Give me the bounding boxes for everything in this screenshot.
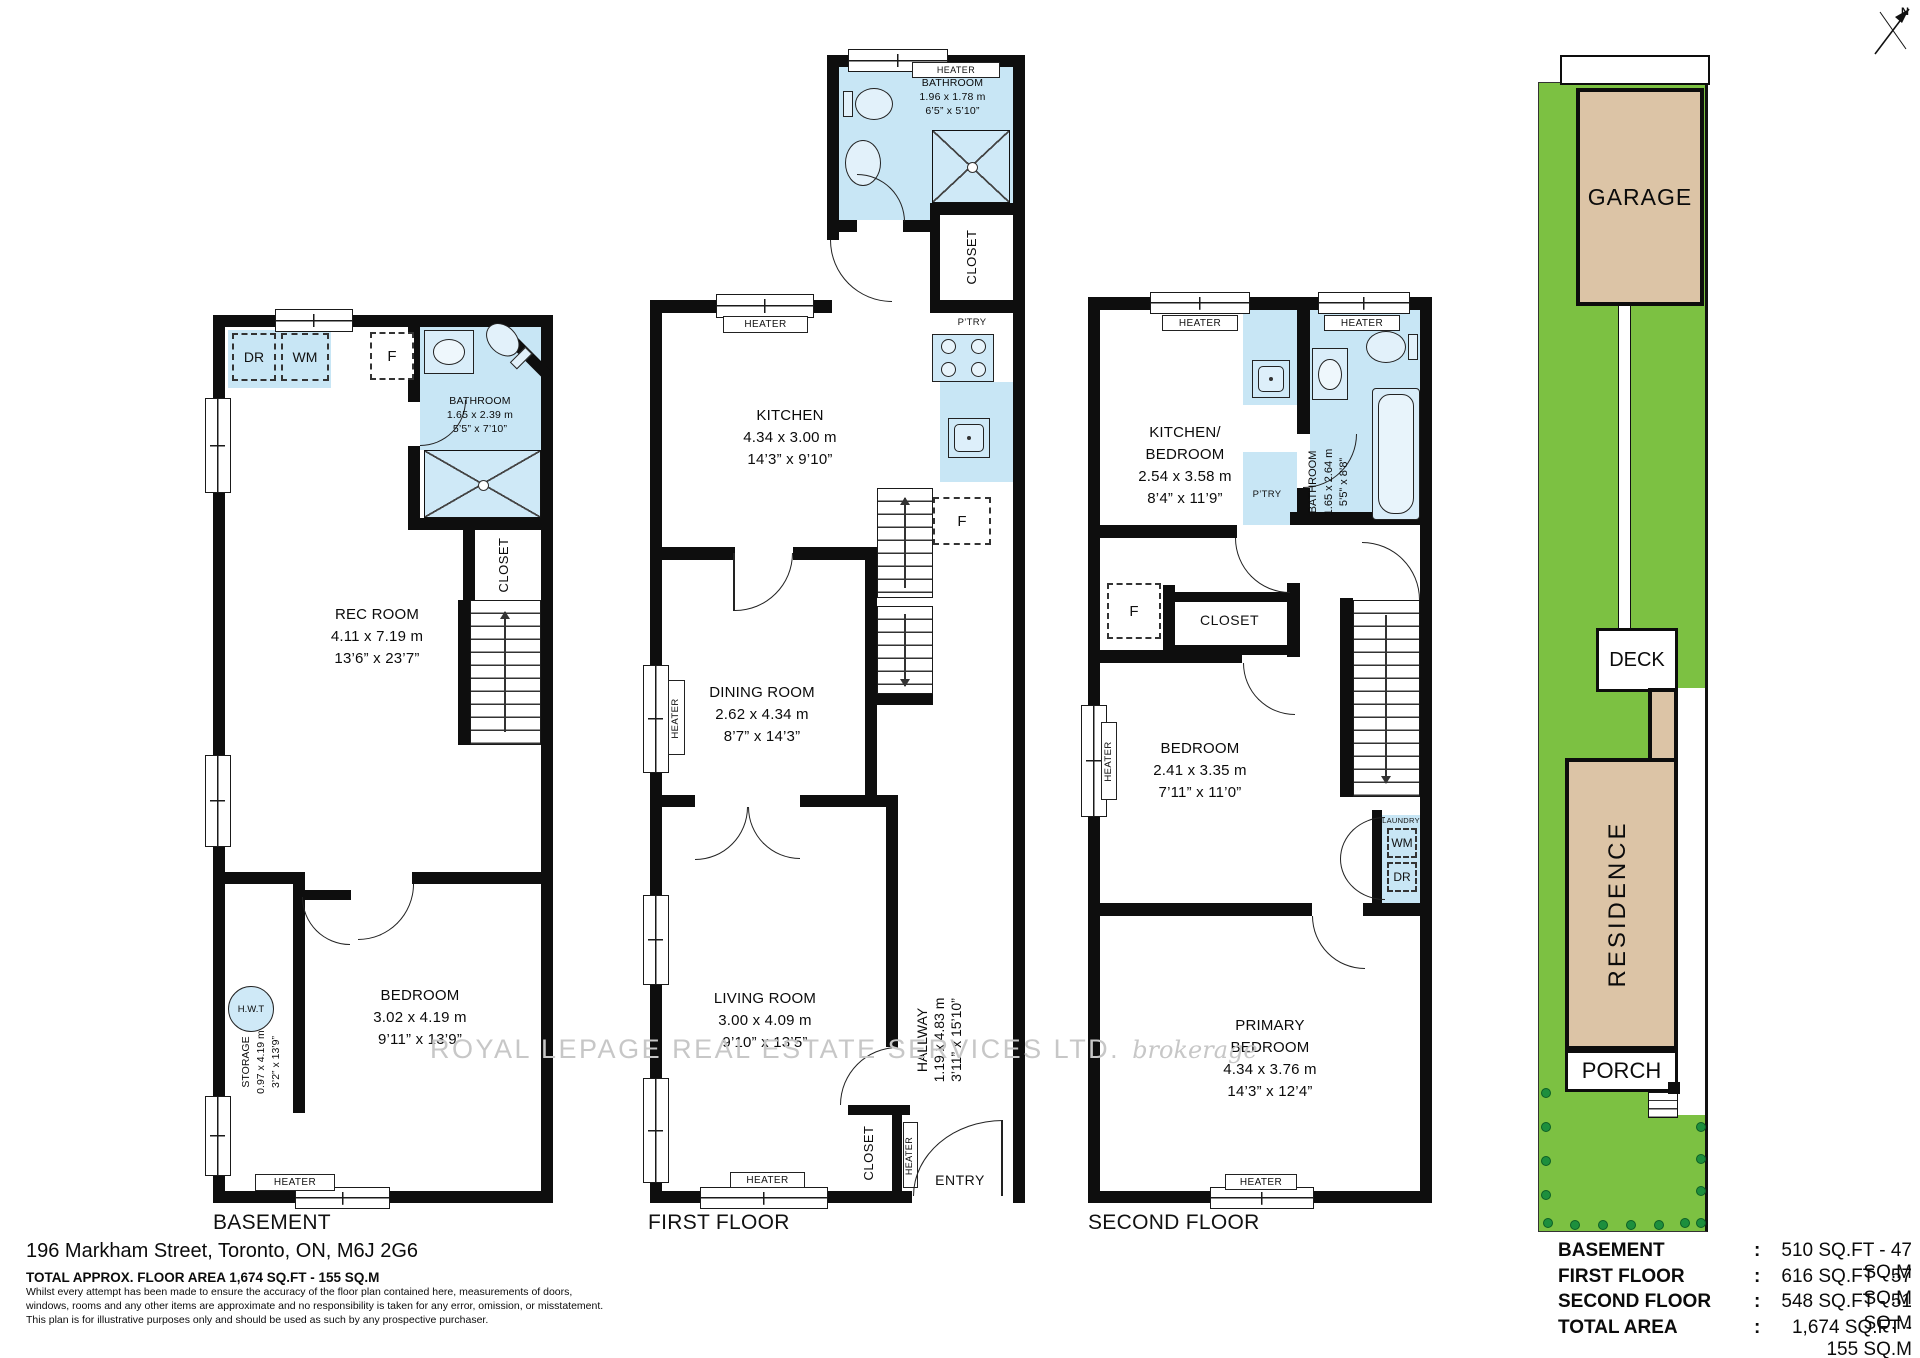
heater-label: HEATER (255, 1174, 335, 1191)
wall (1100, 903, 1312, 916)
room-name: BEDROOM (1160, 1037, 1380, 1059)
area-row-colon: : (1754, 1240, 1770, 1262)
room-dim-ft: 9’10” x 13’5” (665, 1032, 865, 1054)
shrub (1543, 1218, 1553, 1228)
shrub (1696, 1218, 1706, 1228)
heater-label: HEATER (1324, 315, 1400, 331)
shrub (1626, 1220, 1636, 1230)
wall (1420, 297, 1432, 1203)
porch-steps (1648, 1092, 1678, 1118)
address: 196 Markham Street, Toronto, ON, M6J 2G6 (26, 1240, 666, 1263)
dryer-box: DR (1387, 862, 1417, 892)
sink-basin (1318, 359, 1341, 390)
room-dim-m: 1.96 x 1.78 m (895, 90, 1010, 104)
room-name: BEDROOM (325, 985, 515, 1007)
first-living-label: LIVING ROOM 3.00 x 4.09 m 9’10” x 13’5” (665, 988, 865, 1054)
room-dim-ft: 5’5” x 8’8” (1337, 407, 1353, 557)
walkway (1618, 306, 1631, 628)
room-dim-m: 3.02 x 4.19 m (325, 1007, 515, 1029)
floorplan-canvas: HEATER DR WM F CLOSET BATHROOM 1.65 x 2.… (0, 0, 1920, 1358)
north-label: N (1901, 6, 1909, 18)
north-compass-icon: N (1868, 2, 1916, 60)
second-primary-bedroom-label: PRIMARY BEDROOM 4.34 x 3.76 m 14’3” x 12… (1160, 1015, 1380, 1103)
burner (971, 339, 986, 354)
wall (650, 795, 695, 807)
disclaimer-line: windows, rooms and any other items are a… (26, 1300, 666, 1313)
room-name: BEDROOM (1085, 444, 1285, 466)
stairs-arrow (1385, 615, 1387, 783)
room-dim-m: 2.41 x 3.35 m (1105, 760, 1295, 782)
door-arc (840, 1047, 898, 1105)
wall (1100, 525, 1237, 538)
table-row: TOTAL AREA : 1,674 SQ.FT - 155 SQ.M (1558, 1317, 1912, 1343)
wall (463, 530, 475, 600)
garage: GARAGE (1576, 88, 1704, 306)
residence-wing (1648, 688, 1678, 762)
shower (424, 450, 541, 518)
wall (930, 203, 1013, 215)
door-arc (830, 240, 892, 302)
room-dim-ft: 3’11” x 15’10” (948, 955, 965, 1125)
wall (1013, 55, 1025, 1203)
door-arc (358, 884, 414, 940)
first-dining-label: DINING ROOM 2.62 x 4.34 m 8’7” x 14’3” (662, 682, 862, 748)
door-leaf (733, 553, 735, 611)
room-dim-m: 1.65 x 2.39 m (420, 408, 540, 422)
wall (293, 880, 305, 1113)
toilet-bowl (1366, 331, 1406, 363)
area-table: BASEMENT : 510 SQ.FT - 47 SQ.M FIRST FLO… (1558, 1240, 1912, 1342)
shrub (1541, 1088, 1551, 1098)
door-arc (1312, 916, 1365, 969)
stairs-arrow (504, 612, 506, 732)
window (1210, 1187, 1314, 1209)
room-name: KITCHEN/ (1085, 422, 1285, 444)
room-dim-ft: 14’3” x 12’4” (1160, 1081, 1380, 1103)
shrub (1696, 1186, 1706, 1196)
porch: PORCH (1565, 1050, 1678, 1092)
window (643, 895, 669, 985)
wall (412, 872, 541, 884)
post (1668, 1082, 1680, 1094)
door-arc (1235, 538, 1290, 593)
room-dim-ft: 14’3” x 9’10” (690, 449, 890, 471)
door-arc (1340, 817, 1385, 859)
total-area-line: TOTAL APPROX. FLOOR AREA 1,674 SQ.FT - 1… (26, 1270, 666, 1285)
closet-label: CLOSET (861, 1113, 877, 1193)
room-name: REC ROOM (277, 604, 477, 626)
door-arc (1362, 542, 1420, 600)
door-arc (1243, 663, 1295, 715)
deck: DECK (1596, 628, 1678, 692)
room-dim-m: 2.54 x 3.58 m (1085, 466, 1285, 488)
dryer-box: DR (232, 333, 276, 381)
side-walkway (1678, 688, 1705, 1115)
bathtub (1372, 388, 1420, 520)
sink (424, 330, 474, 374)
room-name: DINING ROOM (662, 682, 862, 704)
closet-label: CLOSET (496, 525, 512, 605)
room-name: BATHROOM (1306, 407, 1322, 557)
disclaimer-line: Whilst every attempt has been made to en… (26, 1286, 666, 1299)
room-name: BATHROOM (895, 76, 1010, 90)
heater-label: HEATER (1225, 1174, 1297, 1190)
residence-label: RESIDENCE (1604, 769, 1638, 1039)
table-row: BASEMENT : 510 SQ.FT - 47 SQ.M (1558, 1240, 1912, 1266)
wall (650, 547, 735, 560)
burner (971, 362, 986, 377)
shrub (1654, 1220, 1664, 1230)
stove (932, 334, 994, 382)
closet-label: CLOSET (1172, 612, 1287, 628)
driveway (1560, 55, 1710, 85)
wall (541, 315, 553, 1203)
first-hallway-label: HALLWAY 1.19 x 4.83 m 3’11” x 15’10” (914, 955, 966, 1125)
room-dim-m: 2.62 x 4.34 m (662, 704, 862, 726)
wall (848, 1105, 910, 1115)
room-name: LIVING ROOM (665, 988, 865, 1010)
shrub (1696, 1122, 1706, 1132)
window (275, 309, 353, 332)
shrub (1541, 1122, 1551, 1132)
room-dim-ft: 5’5” x 7’10” (420, 422, 540, 436)
shrub (1541, 1156, 1551, 1166)
room-name: KITCHEN (690, 405, 890, 427)
wall (1172, 592, 1287, 602)
toilet-tank (843, 91, 853, 117)
fridge-box: F (933, 497, 991, 545)
second-bedroom-label: BEDROOM 2.41 x 3.35 m 7’11” x 11’0” (1105, 738, 1295, 804)
wall (903, 220, 935, 232)
window (643, 1078, 669, 1183)
basement-rec-room-label: REC ROOM 4.11 x 7.19 m 13’6” x 23’7” (277, 604, 477, 670)
first-floor-label: FIRST FLOOR (648, 1211, 790, 1235)
basement-bedroom-label: BEDROOM 3.02 x 4.19 m 9’11” x 13’9” (325, 985, 515, 1051)
heater-label: HEATER (723, 316, 808, 333)
wall (839, 220, 857, 232)
area-row-colon: : (1754, 1291, 1770, 1313)
toilet-tank (1408, 334, 1418, 360)
area-row-label: BASEMENT (1558, 1240, 1754, 1262)
window (205, 1096, 231, 1176)
room-dim-m: 1.19 x 4.83 m (931, 955, 948, 1125)
area-row-colon: : (1754, 1317, 1770, 1339)
entry-label: ENTRY (918, 1172, 1002, 1188)
shrub (1696, 1154, 1706, 1164)
door-arc (1340, 859, 1385, 900)
room-dim-m: 3.00 x 4.09 m (665, 1010, 865, 1032)
wall (886, 807, 898, 1047)
stairs-arrow (904, 614, 906, 686)
wall (1363, 903, 1420, 916)
room-dim-ft: 8’7” x 14’3” (662, 726, 862, 748)
room-dim-ft: 7’11” x 11’0” (1105, 782, 1295, 804)
shrub (1680, 1218, 1690, 1228)
table-row: SECOND FLOOR : 548 SQ.FT - 51 SQ.M (1558, 1291, 1912, 1317)
wall (865, 693, 933, 705)
toilet (843, 88, 893, 120)
washer-box: WM (1387, 828, 1417, 858)
door-arc (735, 553, 793, 611)
first-kitchen-label: KITCHEN 4.34 x 3.00 m 14’3” x 9’10” (690, 405, 890, 471)
room-name: HALLWAY (914, 955, 931, 1125)
kitchen-sink (948, 418, 990, 458)
room-name: PRIMARY (1160, 1015, 1380, 1037)
wall (892, 1115, 902, 1191)
hot-water-tank: H.W.T (228, 986, 274, 1032)
area-row-value: 1,674 SQ.FT - 155 SQ.M (1770, 1317, 1912, 1358)
laundry-label: LAUNDRY (1382, 816, 1420, 825)
area-row-label: TOTAL AREA (1558, 1317, 1754, 1339)
room-dim-m: 4.34 x 3.00 m (690, 427, 890, 449)
disclaimer-line: This plan is for illustrative purposes o… (26, 1314, 666, 1327)
shrub (1570, 1220, 1580, 1230)
wall (1100, 650, 1242, 663)
wall (408, 518, 541, 530)
sink-basin (433, 339, 466, 365)
door-arc (748, 807, 800, 859)
heater-label: HEATER (730, 1172, 805, 1188)
heater-label: HEATER (1162, 315, 1238, 331)
kitchen-sink (1252, 360, 1290, 398)
fridge-box: F (1107, 583, 1161, 639)
room-dim-ft: 9’11” x 13’9” (325, 1029, 515, 1051)
wall (1287, 583, 1300, 657)
wall (793, 547, 877, 560)
area-row-label: SECOND FLOOR (1558, 1291, 1754, 1313)
basement-floor-label: BASEMENT (213, 1211, 331, 1235)
wall (800, 795, 898, 807)
window (205, 755, 231, 847)
shrub (1541, 1190, 1551, 1200)
toilet-bowl (855, 88, 893, 120)
table-row: FIRST FLOOR : 616 SQ.FT - 57 SQ.M (1558, 1266, 1912, 1292)
window (700, 1187, 828, 1209)
area-row-colon: : (1754, 1266, 1770, 1288)
burner (941, 339, 956, 354)
stairs-arrow (904, 498, 906, 588)
fridge-box: F (370, 332, 414, 380)
door-arc (302, 897, 350, 945)
room-dim-ft: 13’6” x 23’7” (277, 648, 477, 670)
shrub (1598, 1220, 1608, 1230)
shower (932, 130, 1010, 203)
room-dim-m: 4.11 x 7.19 m (277, 626, 477, 648)
closet-label: CLOSET (964, 215, 980, 299)
window (1318, 292, 1410, 314)
info-block: 196 Markham Street, Toronto, ON, M6J 2G6… (26, 1240, 666, 1327)
room-dim-m: 4.34 x 3.76 m (1160, 1059, 1380, 1081)
first-bathroom-label: BATHROOM 1.96 x 1.78 m 6’5” x 5’10” (895, 76, 1010, 118)
wall (865, 560, 877, 800)
door-arc (695, 807, 748, 860)
wall (827, 55, 839, 240)
wall (1340, 598, 1353, 797)
room-dim-m: 1.65 x 2.64 m (1322, 407, 1338, 557)
room-name: BATHROOM (420, 394, 540, 408)
pantry-label: P’TRY (1243, 489, 1291, 500)
pantry-label: P’TRY (933, 317, 1011, 328)
window (716, 294, 814, 318)
second-bathroom-label: BATHROOM 1.65 x 2.64 m 5’5” x 8’8” (1306, 407, 1354, 557)
second-floor-label: SECOND FLOOR (1088, 1211, 1260, 1235)
room-dim-ft: 6’5” x 5’10” (895, 104, 1010, 118)
washer-box: WM (281, 333, 329, 381)
basement-bathroom-label: BATHROOM 1.65 x 2.39 m 5’5” x 7’10” (420, 394, 540, 436)
window (1150, 292, 1250, 314)
sink (1312, 348, 1348, 400)
wall (930, 300, 1013, 313)
wall (408, 446, 420, 520)
room-name: BEDROOM (1105, 738, 1295, 760)
burner (941, 362, 956, 377)
area-row-label: FIRST FLOOR (1558, 1266, 1754, 1288)
window (205, 398, 231, 493)
toilet (1366, 331, 1418, 363)
